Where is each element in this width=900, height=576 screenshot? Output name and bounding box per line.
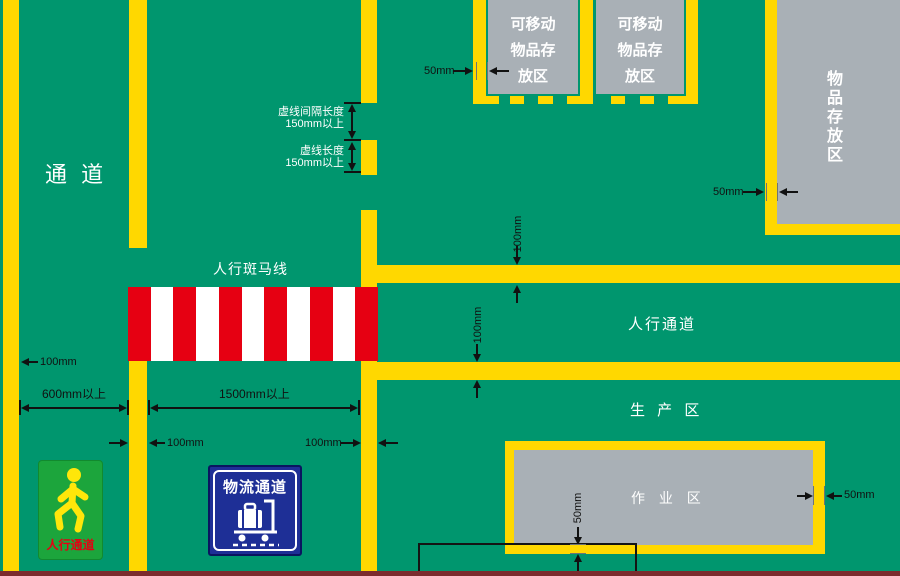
- dash-length-note-line2: 150mm以上: [252, 157, 344, 169]
- dim-100-hline-upper: 100mm: [512, 208, 524, 260]
- dim-arrow: [353, 439, 361, 447]
- dim-arrow: [513, 257, 521, 265]
- dim-arrow: [21, 404, 29, 412]
- storage-dash: [611, 96, 625, 104]
- dim-arrow: [756, 188, 764, 196]
- dim-line: [497, 70, 509, 72]
- boundary-rectangle: [418, 543, 637, 574]
- dim-arrow: [473, 354, 481, 362]
- dim-line: [341, 442, 353, 444]
- dim-line: [351, 112, 353, 132]
- dim-line: [109, 442, 120, 444]
- zebra-crossing-label: 人行斑马线: [213, 259, 288, 279]
- dim-100-hline-lower: 100mm: [472, 299, 484, 351]
- dim-arrow: [473, 380, 481, 388]
- dim-arrow: [513, 285, 521, 293]
- zebra-red-stripe: [219, 287, 242, 361]
- dim-ext-tick: [813, 486, 814, 505]
- dim-tick: [127, 400, 129, 415]
- dim-50-right-storage: 50mm: [713, 186, 744, 198]
- movable-storage-label-line: 可移动: [617, 12, 662, 38]
- dim-arrow: [378, 439, 386, 447]
- dim-line: [577, 527, 579, 537]
- dim-arrow: [150, 404, 158, 412]
- zebra-red-stripe: [264, 287, 287, 361]
- dim-arrow: [149, 439, 157, 447]
- storage-area-right-label: 物品存放区: [820, 70, 844, 165]
- dash-length-note-line1: 虚线长度: [252, 145, 344, 157]
- dim-line: [577, 562, 579, 571]
- movable-storage-line-middle: [580, 0, 593, 96]
- dim-line: [453, 70, 465, 72]
- movable-storage-label-line: 放区: [625, 64, 655, 90]
- dash-gap-note-line1: 虚线间隔长度: [252, 106, 344, 118]
- floor-marking-diagram: 可移动 物品存 放区 可移动 物品存 放区 物品存放区 人行斑马线 作 业 区 …: [0, 0, 900, 576]
- dim-50-movable: 50mm: [424, 65, 455, 77]
- dim-ext-tick: [487, 62, 488, 80]
- horizontal-line-lower: [361, 362, 900, 380]
- left-aisle-line: [3, 0, 19, 572]
- center-line-dash-segment-2: [361, 140, 377, 175]
- dim-1500-label: 1500mm以上: [219, 388, 290, 401]
- movable-storage-label-line: 放区: [518, 64, 548, 90]
- dim-ext-tick: [570, 544, 586, 545]
- dim-line: [787, 191, 798, 193]
- dim-line: [157, 442, 165, 444]
- dim-ext-tick: [824, 486, 825, 505]
- aisle-line-2-lower: [129, 361, 147, 572]
- zebra-red-stripe: [173, 287, 196, 361]
- dim-line: [476, 344, 478, 354]
- luggage-cart-icon: [231, 498, 283, 548]
- dash-gap-note-line2: 150mm以上: [252, 118, 344, 130]
- pedestrian-aisle-label: 人行通道: [628, 313, 696, 334]
- dim-line: [516, 293, 518, 303]
- dim-arrow: [465, 67, 473, 75]
- pedestrian-sign-label: 人行通道: [39, 536, 102, 553]
- dim-line: [158, 407, 350, 409]
- dim-arrow: [119, 404, 127, 412]
- storage-right-hline: [765, 224, 900, 235]
- dim-line: [476, 388, 478, 398]
- movable-storage-label-line: 物品存: [617, 38, 662, 64]
- logistics-sign-label: 物流通道: [210, 476, 300, 497]
- bottom-edge-strip: [0, 571, 900, 576]
- logistics-sign: 物流通道: [208, 465, 302, 556]
- dim-arrow: [348, 131, 356, 139]
- dim-arrow: [348, 142, 356, 150]
- dim-arrow: [779, 188, 787, 196]
- dim-ext-tick: [766, 183, 767, 201]
- movable-storage-label-line: 可移动: [510, 12, 555, 38]
- dim-tick: [358, 400, 360, 415]
- dim-ext-tick: [476, 62, 477, 80]
- dim-arrow: [489, 67, 497, 75]
- movable-storage-line-right: [686, 0, 698, 96]
- dim-tick: [344, 139, 361, 141]
- dim-line: [386, 442, 398, 444]
- aisle-label: 通 道: [45, 157, 107, 189]
- movable-storage-line-left: [473, 0, 486, 96]
- dim-line: [743, 191, 756, 193]
- storage-dash: [640, 96, 654, 104]
- movable-storage-label-1: 可移动 物品存 放区: [488, 8, 578, 94]
- production-area-label: 生 产 区: [630, 399, 703, 420]
- dim-100-center-line: 100mm: [305, 437, 342, 449]
- dim-line: [516, 246, 518, 257]
- aisle-line-2-upper: [129, 0, 147, 248]
- walking-person-icon: [43, 465, 99, 533]
- dim-100-left-stripe: 100mm: [40, 356, 77, 368]
- dim-line: [834, 495, 842, 497]
- dim-arrow: [348, 104, 356, 112]
- dim-line: [351, 150, 353, 164]
- dim-line: [29, 407, 120, 409]
- dim-600-label: 600mm以上: [42, 388, 106, 401]
- zebra-crossing: [128, 287, 378, 361]
- work-area-label: 作 业 区: [631, 488, 706, 508]
- dash-gap-note: 虚线间隔长度 150mm以上: [252, 106, 344, 130]
- storage-dash: [567, 96, 593, 104]
- dim-tick: [344, 171, 361, 173]
- movable-storage-label-line: 物品存: [510, 38, 555, 64]
- zebra-red-stripe: [128, 287, 151, 361]
- zebra-red-stripe: [355, 287, 378, 361]
- zebra-red-stripe: [310, 287, 333, 361]
- dim-arrow: [826, 492, 834, 500]
- dim-line: [797, 495, 805, 497]
- dim-arrow: [120, 439, 128, 447]
- dim-100-line2: 100mm: [167, 437, 204, 449]
- dim-arrow: [348, 163, 356, 171]
- storage-dash: [538, 96, 553, 104]
- dim-ext-tick: [777, 183, 778, 201]
- horizontal-line-upper: [361, 265, 900, 283]
- center-line-dash-segment-1: [361, 0, 377, 103]
- movable-storage-label-2: 可移动 物品存 放区: [596, 8, 684, 94]
- dim-line: [29, 361, 38, 363]
- dim-arrow: [21, 358, 29, 366]
- storage-dash: [510, 96, 524, 104]
- storage-dash: [668, 96, 698, 104]
- storage-dash: [473, 96, 499, 104]
- dim-arrow: [350, 404, 358, 412]
- dim-50-work-right: 50mm: [844, 489, 875, 501]
- pedestrian-sign: 人行通道: [38, 460, 103, 560]
- dash-length-note: 虚线长度 150mm以上: [252, 145, 344, 169]
- dim-arrow: [574, 554, 582, 562]
- dim-arrow: [805, 492, 813, 500]
